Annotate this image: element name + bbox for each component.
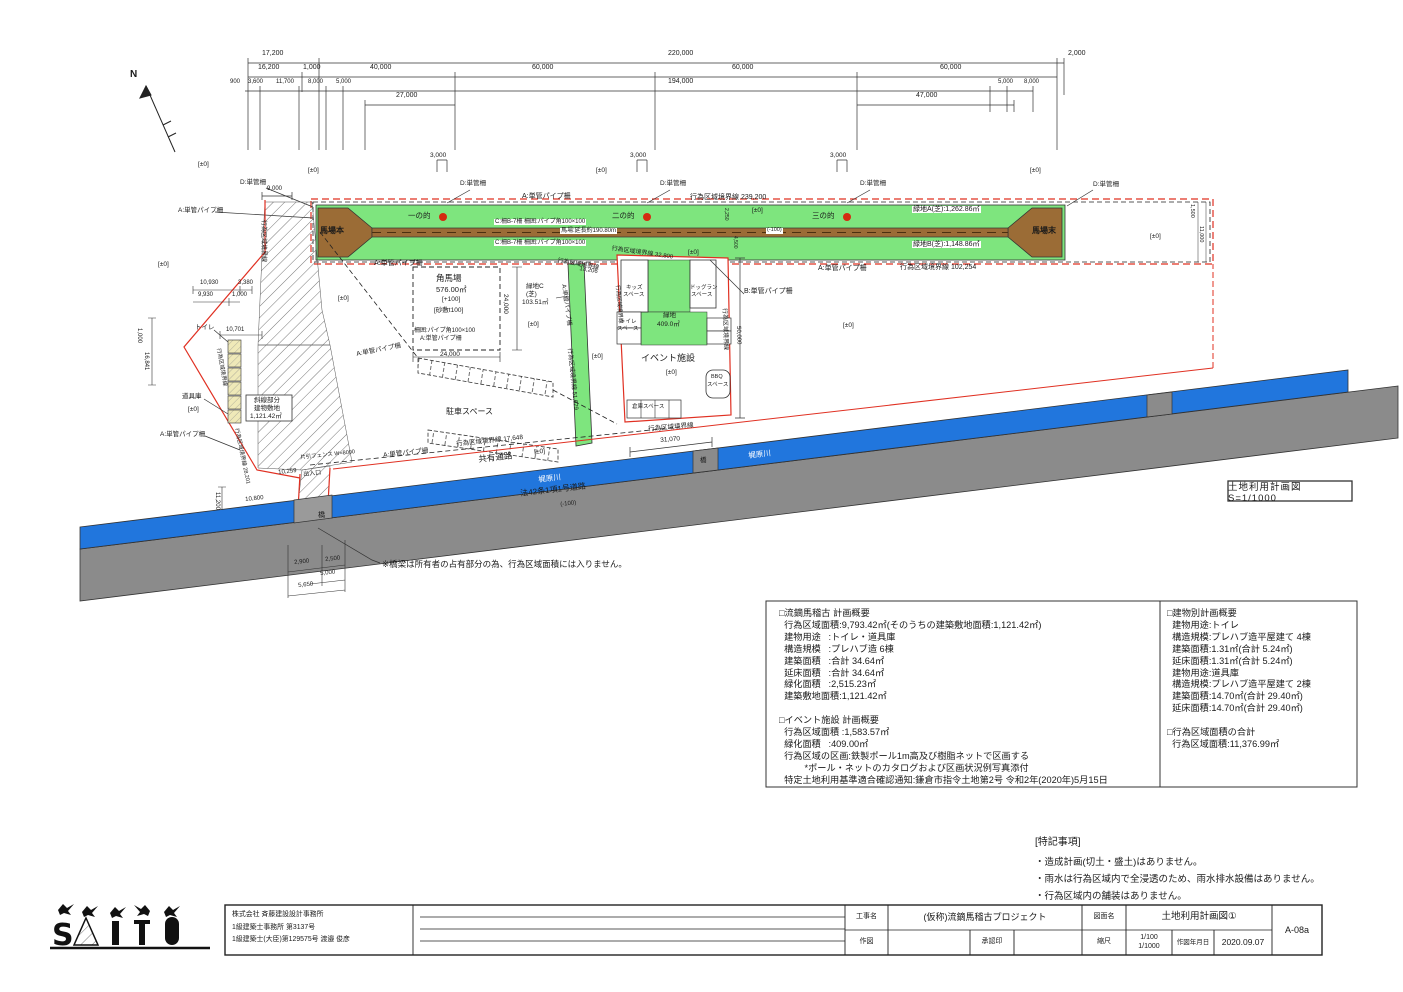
dim-label: 2,000 xyxy=(1068,50,1086,57)
dim-label: 40,000 xyxy=(370,64,391,71)
sheet-number: A-08a xyxy=(1272,905,1322,955)
drawing-date: 2020.09.07 xyxy=(1214,930,1272,955)
summary-yabusame: □流鏑馬稽古 計画概要 行為区域面積:9,793.42㎡(そのうちの建築敷地面積… xyxy=(779,608,1154,787)
summary-line: 行為区域面積:9,793.42㎡(そのうちの建築敷地面積:1,121.42㎡) xyxy=(779,620,1154,632)
area-label: 409.0㎡ xyxy=(657,322,680,329)
dim-label: 3,000 xyxy=(430,153,446,160)
boundary-label: 行為区域境界線 239,200 xyxy=(690,194,766,201)
area-label: 駐車スペース xyxy=(446,408,493,416)
dim-label: 2,900 xyxy=(294,558,310,566)
label-drawn: 作図 xyxy=(845,930,888,955)
label-drawing-name: 図面名 xyxy=(1082,905,1126,930)
dim-label: 5,000 xyxy=(336,79,351,85)
summary-line xyxy=(1167,715,1355,727)
dim-label: 60,000 xyxy=(732,64,753,71)
target-label: 二の的 xyxy=(612,212,635,220)
area-label: (芝) xyxy=(526,292,537,299)
fence-label: D:単管柵 xyxy=(660,181,686,188)
area-label: 103.51㎡ xyxy=(522,300,548,307)
summary-line: 建物用途:トイレ xyxy=(1167,620,1355,632)
area-label: ドッグラン xyxy=(690,286,718,292)
summary-line: 建物用途 :トイレ・道具庫 xyxy=(779,632,1154,644)
fence-label: B:単管パイプ柵 xyxy=(744,288,793,295)
track-label: 馬場:延長約190.80m xyxy=(560,228,617,234)
area-label: 馬場末 xyxy=(1032,227,1056,235)
fence-label: 片引フェンス W=8000 xyxy=(300,450,355,461)
dim-label: 47,000 xyxy=(916,92,937,99)
area-label: スペース xyxy=(707,383,728,389)
boundary-label: 行為区域境界線 51,629 xyxy=(566,348,578,410)
dim-label: 60,000 xyxy=(532,64,553,71)
dim-label: 9,930 xyxy=(198,292,213,298)
fence-label: D:単管柵 xyxy=(1093,182,1119,189)
dim-label: 1,000 xyxy=(303,64,321,71)
dim-label: 220,000 xyxy=(668,50,693,57)
dim-label: 2,500 xyxy=(325,555,341,563)
dim-label: 24,000 xyxy=(440,352,460,359)
level-label: [±0] xyxy=(534,449,545,457)
dim-label: 27,000 xyxy=(396,92,417,99)
fence-label: A:単管パイプ柵 xyxy=(178,208,223,215)
special-note: ・造成計画(切土・盛土)はありません。 xyxy=(1035,854,1320,871)
area-label: 馬場本 xyxy=(320,227,344,235)
area-label: 橋 xyxy=(700,458,707,465)
company-line: 1級建築士(大臣)第129575号 渡邉 俊彦 xyxy=(232,934,350,947)
level-label: [±0] xyxy=(843,323,854,330)
dim-label: 17,200 xyxy=(262,50,283,57)
summary-line: 特定土地利用基準適合確認通知:鎌倉市指令土地第2号 令和2年(2020年)5月1… xyxy=(779,775,1154,787)
level-label: [±0] xyxy=(528,322,539,329)
area-label: BBQ xyxy=(711,375,723,381)
summary-line: 緑化面積 :2,515.23㎡ xyxy=(779,679,1154,691)
area-label: トイレ xyxy=(195,325,215,332)
area-label: 倉庫スペース xyxy=(632,405,664,411)
dim-label: 1,500 xyxy=(1189,204,1195,218)
summary-line: 建築面積 :合計 34.64㎡ xyxy=(779,656,1154,668)
boundary-label: 行為区域境界線 xyxy=(260,220,266,262)
label-date: 作図年月日 xyxy=(1172,930,1214,955)
drawing-name: 土地利用計画図① xyxy=(1126,905,1272,930)
dim-label: 31,070 xyxy=(660,436,680,444)
level-label: [±0] xyxy=(158,262,169,269)
summary-line xyxy=(779,703,1154,715)
summary-line: 延床面積:1.31㎡(合計 5.24㎡) xyxy=(1167,656,1355,668)
level-label: (-100) xyxy=(766,228,783,234)
area-label: 緑地B(芝):1,148.86㎡ xyxy=(912,241,981,248)
boundary-label: 行為区域境界線 28,201 xyxy=(233,428,250,485)
boundary-label: 行為区域境界線 xyxy=(648,423,694,433)
summary-line: 緑化面積 :409.00㎡ xyxy=(779,739,1154,751)
dim-label: 50,000 xyxy=(735,326,742,345)
dim-label: 8,000 xyxy=(308,79,323,85)
bridge-note: ※橋梁は所有者の占有部分の為、行為区域面積には入りません。 xyxy=(382,560,627,569)
fence-label: A:単管パイプ柵 xyxy=(420,336,462,342)
dim-label: 4,500 xyxy=(732,236,737,249)
scale-value: 1/100 1/1000 xyxy=(1126,930,1172,955)
dim-label: 5,000 xyxy=(320,569,336,577)
boundary-label: 行為区域境界線 17,648 xyxy=(456,435,523,448)
label-scale: 縮尺 xyxy=(1082,930,1126,955)
level-label: [±0] xyxy=(1150,234,1161,241)
dim-label: 11,200 xyxy=(214,492,220,510)
summary-line: 行為区域面積:11,376.99㎡ xyxy=(1167,739,1355,751)
dim-label: 10,259 xyxy=(278,468,297,476)
dim-label: 11,700 xyxy=(276,79,294,85)
fence-label: A:単管パイプ柵 xyxy=(356,343,402,358)
level-label: [±0] xyxy=(338,296,349,303)
drawing-stamp: 土地利用計画図 S=1/1000 xyxy=(1228,481,1352,501)
dim-label: 60,000 xyxy=(940,64,961,71)
site-plan-sheet: S 17,200220,0002,00016,2001,00040,00060,… xyxy=(0,0,1403,992)
dim-label: 9,000 xyxy=(267,186,282,192)
area-label: スペース xyxy=(617,327,638,333)
level-label: [+100] xyxy=(442,297,460,304)
fence-label: C:柵B-7柵 柵囲:パイプ角100×100 xyxy=(494,219,586,225)
fence-label: D:単管柵 xyxy=(860,181,886,188)
fence-label: D:単管柵 xyxy=(460,181,486,188)
special-notes: [特記事項] ・造成計画(切土・盛土)はありません。・雨水は行為区域内で全浸透の… xyxy=(1035,833,1320,905)
dim-label: 8,000 xyxy=(1024,79,1039,85)
level-label: [±0] xyxy=(1030,168,1041,175)
dim-label: 10,800 xyxy=(245,495,264,503)
scale-1-1000: 1/1000 xyxy=(1138,943,1159,951)
area-label: スペース xyxy=(623,293,644,299)
area-label: イベント施設 xyxy=(641,354,695,363)
summary-line: 延床面積:14.70㎡(合計 29.40㎡) xyxy=(1167,703,1355,715)
summary-line: 建築面積:14.70㎡(合計 29.40㎡) xyxy=(1167,691,1355,703)
area-label: スペース xyxy=(691,293,712,299)
dim-label: 1,000 xyxy=(232,292,247,298)
area-label: 緑地A(芝):1,262.86㎡ xyxy=(912,206,981,213)
area-label: 法42条1項1号道路 xyxy=(520,483,586,498)
area-label: 緑地 xyxy=(663,313,676,320)
summary-line: 延床面積 :合計 34.64㎡ xyxy=(779,668,1154,680)
special-notes-title: [特記事項] xyxy=(1035,833,1320,848)
label-project: 工事名 xyxy=(845,905,888,930)
boundary-label: 行為区域境界線 32,800 xyxy=(611,246,673,261)
special-notes-items: ・造成計画(切土・盛土)はありません。・雨水は行為区域内で全浸透のため、雨水排水… xyxy=(1035,854,1320,905)
area-label: キッズ xyxy=(626,286,643,292)
area-label: 斜線部分 xyxy=(254,398,280,405)
summary-line: 行為区域面積 :1,583.57㎡ xyxy=(779,727,1154,739)
special-note: ・雨水は行為区域内で全浸透のため、雨水排水設備はありません。 xyxy=(1035,871,1320,888)
summary-buildings: □建物別計画概要 建物用途:トイレ 構造規模:プレハブ造平屋建て 4棟 建築面積… xyxy=(1167,608,1355,751)
project-name: (仮称)流鏑馬稽古プロジェクト xyxy=(888,905,1082,930)
level-label: [±0] xyxy=(308,168,319,175)
area-label: 緑地C xyxy=(526,284,544,291)
dim-label: 1,000 xyxy=(136,328,142,343)
summary-line: 建物用途:道具庫 xyxy=(1167,668,1355,680)
company-info: 株式会社 斉藤建設設計事務所1級建築士事務所 第3137号1級建築士(大臣)第1… xyxy=(232,909,350,947)
dim-label: 16,841 xyxy=(143,352,149,370)
company-line: 1級建築士事務所 第3137号 xyxy=(232,922,350,935)
fence-label: A:単管パイプ柵 xyxy=(522,193,571,200)
summary-line: 行為区域の区画:鉄製ポール1m高及び樹脂ネットで区画する xyxy=(779,751,1154,763)
summary-line: 建築面積:1.31㎡(合計 5.24㎡) xyxy=(1167,644,1355,656)
dim-label: 5,000 xyxy=(998,79,1013,85)
dim-label: 194,000 xyxy=(668,78,693,85)
dim-label: 10,930 xyxy=(200,280,218,286)
level-label: [±0] xyxy=(188,407,199,414)
area-label: 道具庫 xyxy=(182,394,202,401)
area-label: 共有通路 xyxy=(478,451,513,463)
level-label: [±0] xyxy=(752,208,763,215)
fence-label: A:単管パイプ柵 xyxy=(560,284,572,326)
area-label: 角馬場 xyxy=(436,274,462,283)
special-note: ・行為区域内の舗装はありません。 xyxy=(1035,888,1320,905)
summary-line: □イベント施設 計画概要 xyxy=(779,715,1154,727)
fence-label: A:単管パイプ柵 xyxy=(818,265,867,272)
fence-label: A:単管パイプ柵 xyxy=(374,260,423,267)
dim-label: 24,000 xyxy=(502,294,509,314)
area-label: 梶原川 xyxy=(538,473,561,483)
north-label: N xyxy=(130,70,137,80)
level-label: [±0] xyxy=(198,162,209,169)
fence-label: A:単管パイプ柵 xyxy=(383,448,429,459)
level-label: (-100) xyxy=(560,500,577,508)
area-label: 建物敷地 xyxy=(254,406,280,413)
level-label: [±0] xyxy=(592,354,603,361)
fence-label: C:柵B-7柵 柵囲:パイプ角100×100 xyxy=(494,240,586,246)
boundary-label: 行為区域境界線 xyxy=(215,348,227,387)
summary-line: 構造規模:プレハブ造平屋建て 2棟 xyxy=(1167,679,1355,691)
level-label: [±0] xyxy=(688,250,699,257)
scale-1-100: 1/100 xyxy=(1140,934,1158,942)
fence-label: 柵囲:パイプ角100×100 xyxy=(414,328,475,334)
fence-label: D:単管柵 xyxy=(240,180,266,187)
dim-label: 3,380 xyxy=(238,280,253,286)
target-label: 三の的 xyxy=(812,212,835,220)
summary-line: 構造規模:プレハブ造平屋建て 4棟 xyxy=(1167,632,1355,644)
area-label: 576.00㎡ xyxy=(436,286,466,294)
area-label: 出入口 xyxy=(303,470,322,478)
dim-label: 3,000 xyxy=(830,153,846,160)
boundary-label: 行為区域境界線 xyxy=(614,285,623,324)
label-approval: 承認印 xyxy=(970,930,1014,955)
dim-label: 10,701 xyxy=(226,327,244,333)
boundary-label: 行為区域境界線 xyxy=(721,308,728,350)
area-label: 橋 xyxy=(318,512,325,519)
fence-label: A:単管パイプ柵 xyxy=(160,432,205,439)
area-label: 梶原川 xyxy=(748,449,771,459)
dim-label: 3,600 xyxy=(248,79,263,85)
summary-line: *ポール・ネットのカタログおよび区画状況例写真添付 xyxy=(779,763,1154,775)
level-label: [砂敷t100] xyxy=(434,308,463,315)
dim-label: 16,200 xyxy=(258,64,279,71)
summary-line: 建築敷地面積:1,121.42㎡ xyxy=(779,691,1154,703)
level-label: [±0] xyxy=(666,370,677,377)
summary-line: □行為区域面積の合計 xyxy=(1167,727,1355,739)
level-label: [±0] xyxy=(596,168,607,175)
summary-line: □建物別計画概要 xyxy=(1167,608,1355,620)
dim-label: 11,000 xyxy=(1198,226,1204,242)
target-label: 一の的 xyxy=(408,212,431,220)
dim-label: 2,250 xyxy=(723,208,728,221)
dim-label: 5,650 xyxy=(298,581,314,589)
company-line: 株式会社 斉藤建設設計事務所 xyxy=(232,909,350,922)
boundary-label: 行為区域境界線 102,254 xyxy=(900,264,976,271)
area-label: 1,121.42㎡ xyxy=(250,414,282,421)
dim-label: 900 xyxy=(230,79,240,85)
summary-line: □流鏑馬稽古 計画概要 xyxy=(779,608,1154,620)
dim-label: 3,000 xyxy=(630,153,646,160)
summary-line: 構造規模 :プレハブ造 6棟 xyxy=(779,644,1154,656)
